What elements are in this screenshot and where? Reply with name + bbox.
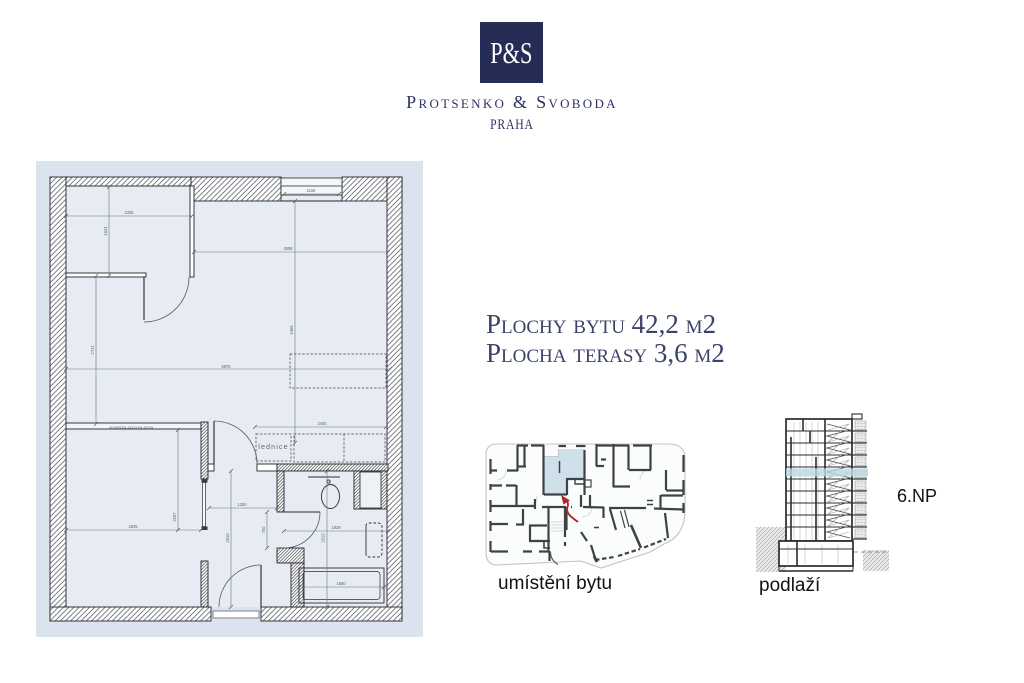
svg-text:2510: 2510: [225, 533, 230, 543]
svg-text:1624: 1624: [103, 226, 108, 236]
svg-text:2405: 2405: [317, 421, 327, 426]
svg-text:lednice: lednice: [258, 442, 288, 451]
svg-text:3257: 3257: [172, 512, 177, 522]
svg-text:2510: 2510: [321, 533, 326, 543]
svg-text:2325: 2325: [124, 210, 134, 215]
svg-text:2505: 2505: [128, 524, 138, 529]
svg-text:1250: 1250: [237, 502, 247, 507]
svg-text:1680: 1680: [336, 581, 346, 586]
svg-text:5975: 5975: [221, 364, 231, 369]
svg-text:1165: 1165: [307, 188, 317, 193]
svg-text:1929: 1929: [331, 525, 341, 530]
svg-text:2721: 2721: [90, 345, 95, 355]
svg-text:3588: 3588: [283, 246, 293, 251]
svg-text:700: 700: [261, 526, 266, 534]
svg-text:prosklená zásuvná stěna: prosklená zásuvná stěna: [109, 425, 153, 429]
svg-text:4465: 4465: [289, 325, 294, 335]
